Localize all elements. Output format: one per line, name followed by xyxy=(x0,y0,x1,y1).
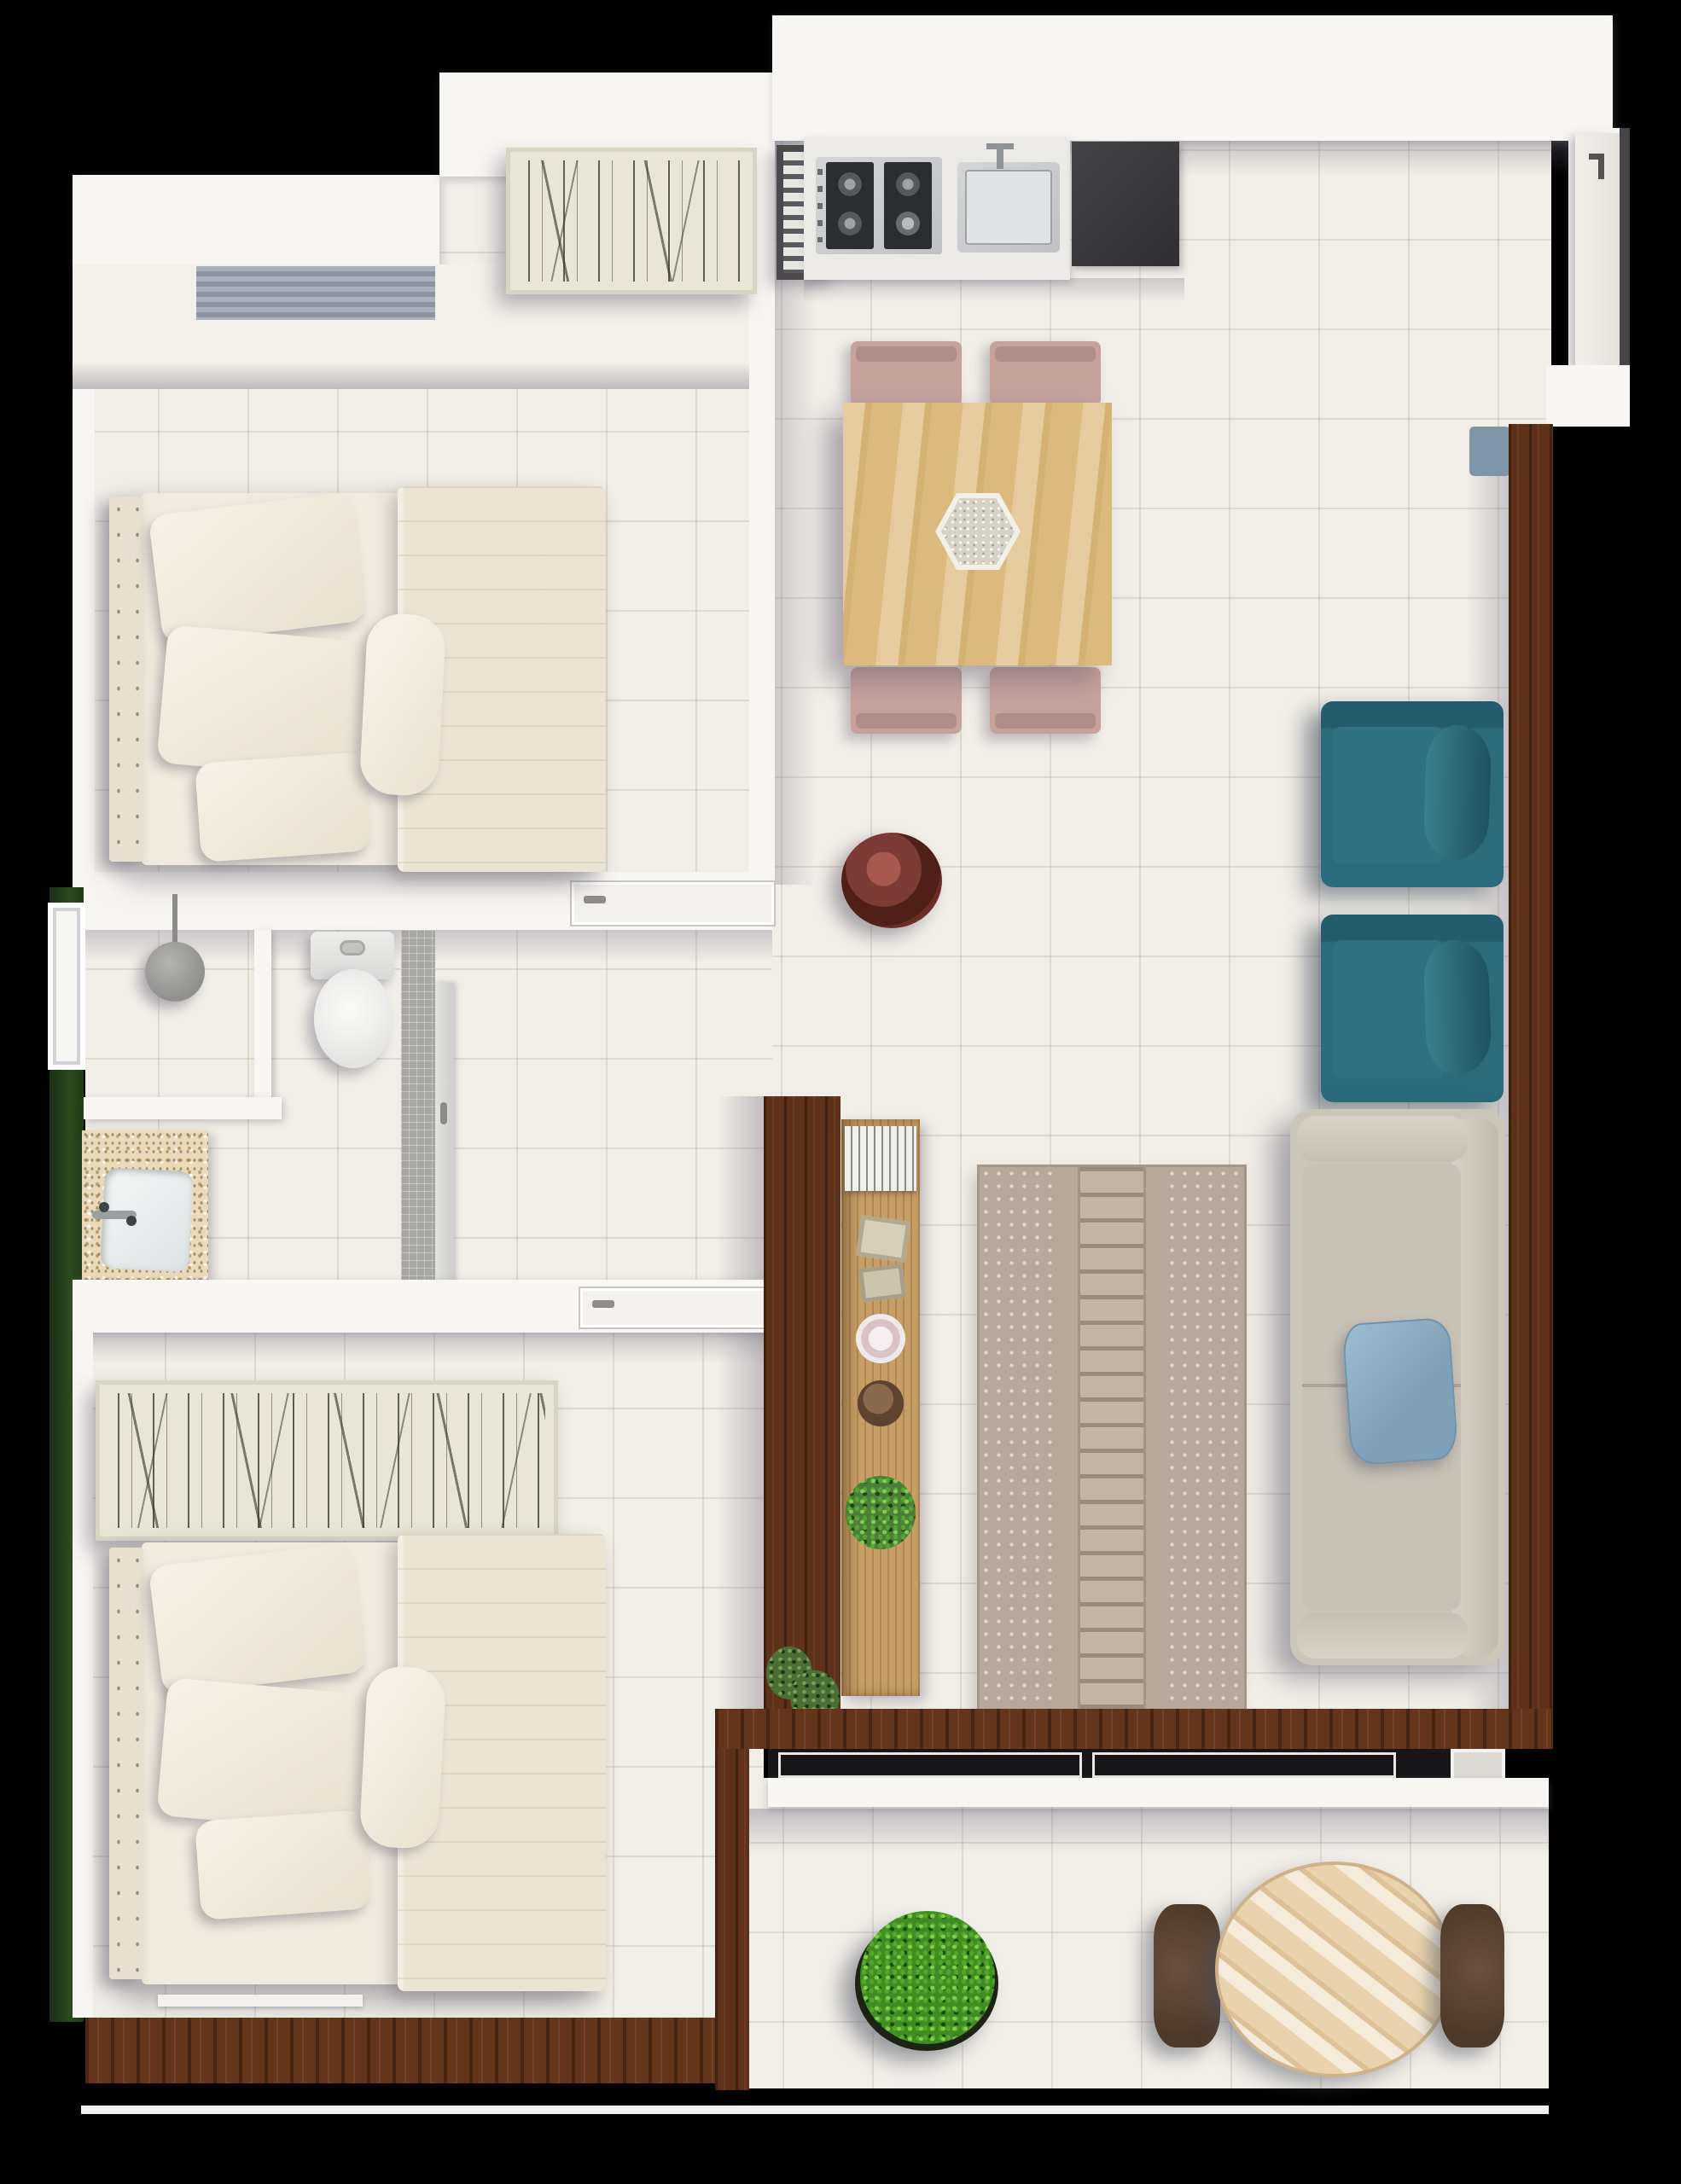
sliding-door-track xyxy=(768,1749,1451,1778)
balcony-chair xyxy=(1154,1904,1220,2047)
glass-panel-frame xyxy=(778,1752,1082,1778)
balcony-chair xyxy=(1440,1904,1504,2047)
balcony-round-table xyxy=(1219,1865,1451,2074)
room-balcony xyxy=(0,0,1681,2184)
balcony-wood-band xyxy=(715,1709,1551,1749)
balcony-sill xyxy=(768,1778,1549,1807)
floor-plan-canvas xyxy=(0,0,1681,2184)
balcony-plant-icon xyxy=(860,1911,995,2044)
balcony-left-post xyxy=(715,1749,749,2090)
glass-panel-frame xyxy=(1092,1752,1396,1778)
plan-outer-line xyxy=(81,2106,1549,2114)
